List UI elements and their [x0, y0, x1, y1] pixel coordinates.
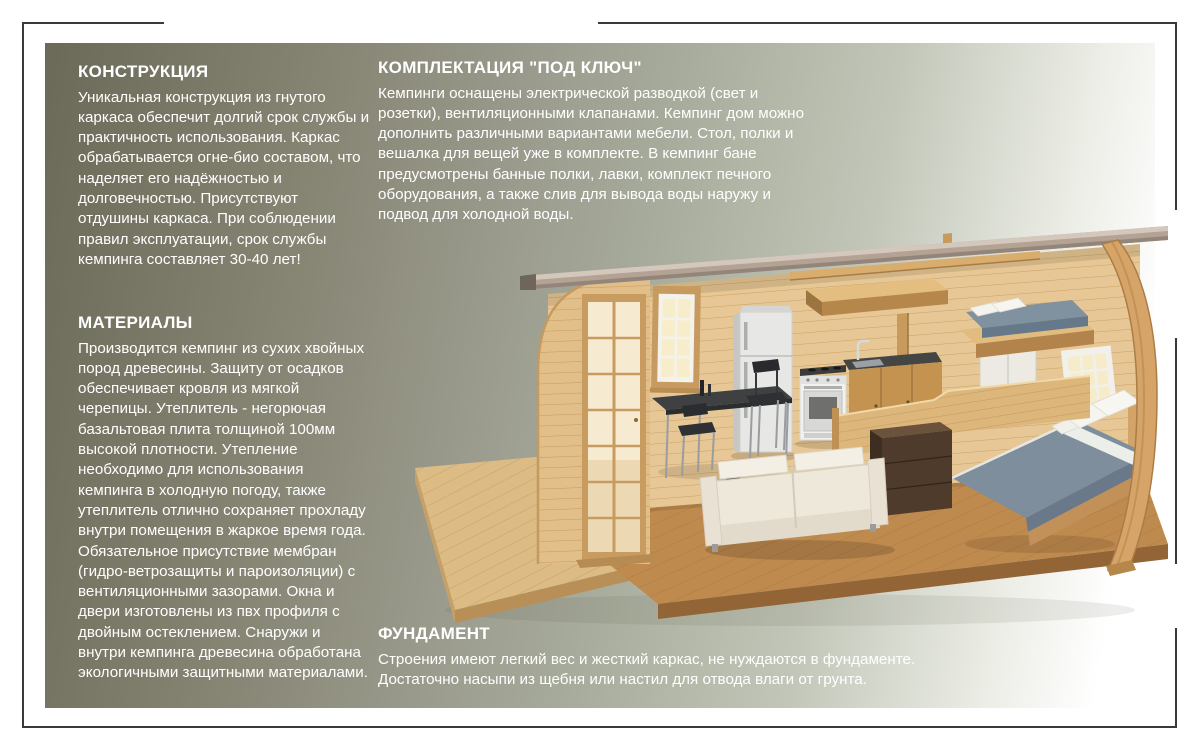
materials-body: Производится кемпинг из сухих хвойных по…: [78, 339, 370, 684]
frame-right-middle: [1175, 338, 1177, 564]
section-construction: КОНСТРУКЦИЯ Уникальная конструкция из гн…: [78, 62, 370, 270]
frame-bottom: [22, 726, 1177, 728]
frame-left: [22, 22, 24, 728]
foundation-title: ФУНДАМЕНТ: [378, 624, 926, 644]
turnkey-title: КОМПЛЕКТАЦИЯ "ПОД КЛЮЧ": [378, 58, 810, 78]
section-turnkey: КОМПЛЕКТАЦИЯ "ПОД КЛЮЧ" Кемпинги оснащен…: [378, 58, 810, 226]
foundation-body: Строения имеют легкий вес и жесткий карк…: [378, 650, 926, 691]
construction-title: КОНСТРУКЦИЯ: [78, 62, 370, 82]
window-left: [649, 286, 703, 394]
frame-top-left: [22, 22, 164, 24]
section-materials: МАТЕРИАЛЫ Производится кемпинг из сухих …: [78, 313, 370, 684]
materials-title: МАТЕРИАЛЫ: [78, 313, 370, 333]
section-foundation: ФУНДАМЕНТ Строения имеют легкий вес и же…: [378, 624, 926, 690]
glass-french-door: [576, 294, 656, 568]
frame-right-lower: [1175, 628, 1177, 728]
frame-right-upper: [1175, 22, 1177, 210]
frame-top-right: [598, 22, 1177, 24]
turnkey-body: Кемпинги оснащены электрической разводко…: [378, 84, 810, 226]
construction-body: Уникальная конструкция из гнутого каркас…: [78, 88, 370, 271]
camping-house-cutaway: [400, 210, 1175, 640]
brochure-page: КОНСТРУКЦИЯ Уникальная конструкция из гн…: [0, 0, 1200, 750]
kitchen-fridge: [731, 306, 799, 462]
